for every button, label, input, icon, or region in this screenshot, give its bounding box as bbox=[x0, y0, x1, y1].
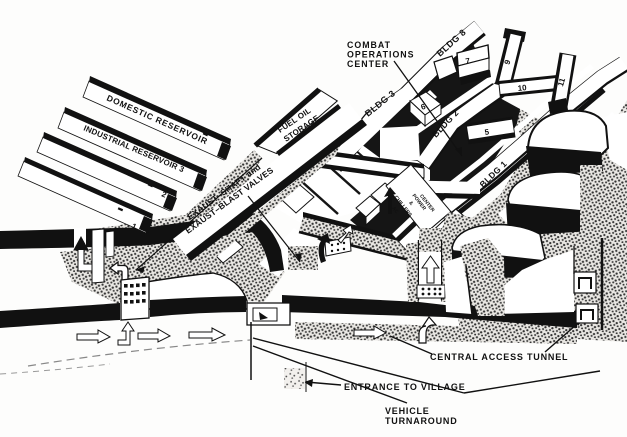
svg-text:COMBAT: COMBAT bbox=[347, 40, 391, 50]
svg-text:OPERATIONS: OPERATIONS bbox=[347, 50, 415, 60]
svg-text:10: 10 bbox=[517, 83, 527, 93]
svg-text:CENTRAL ACCESS TUNNEL: CENTRAL ACCESS TUNNEL bbox=[430, 352, 568, 362]
svg-text:CENTER: CENTER bbox=[347, 59, 389, 69]
svg-text:VEHICLE: VEHICLE bbox=[385, 406, 430, 416]
svg-text:TURNAROUND: TURNAROUND bbox=[385, 416, 458, 426]
